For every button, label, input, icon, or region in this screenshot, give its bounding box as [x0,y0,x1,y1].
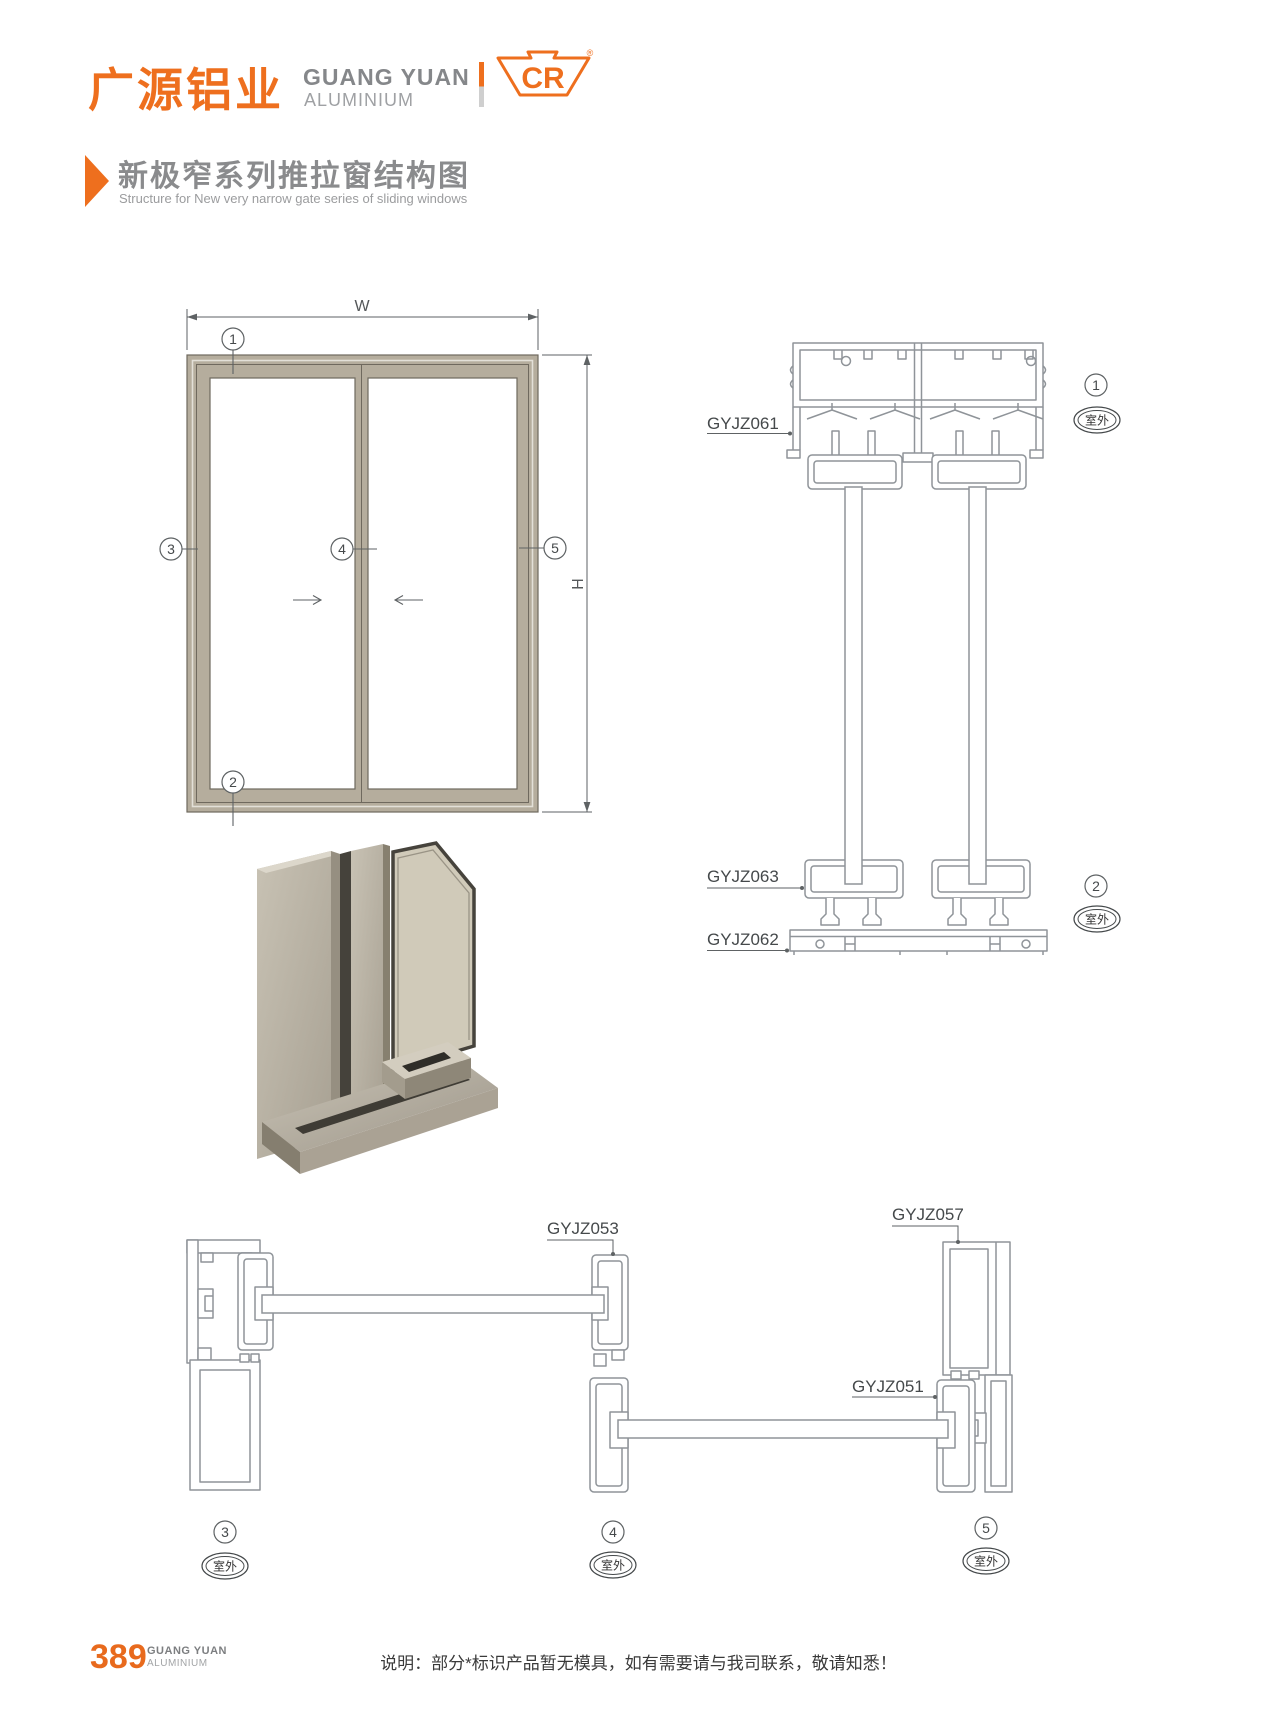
title-arrow-icon [85,155,111,209]
callout-4: 4 [338,541,346,557]
sill-profile-drawing [790,930,1047,955]
footer-note: 说明：部分*标识产品暂无模具，如有需要请与我司联系，敬请知悉！ [0,1649,1277,1674]
outdoor-label: 室外 [974,1554,998,1569]
registered-mark: ® [587,48,594,58]
outdoor-label: 室外 [1085,413,1109,428]
callout-1: 1 [1092,377,1100,393]
section-callout-5: 5 室外 [963,1517,1009,1574]
callout-5: 5 [551,540,559,556]
callout-1: 1 [229,331,237,347]
meeting-stile-profiles [590,1255,628,1492]
catalog-page: 广源铝业 GUANG YUAN ALUMINIUM CR ® 新极窄系列推拉窗结… [0,0,1277,1721]
logo-english-line1: GUANG YUAN [303,64,470,91]
section-callout-4: 4 室外 [590,1521,636,1578]
left-glass-pane [210,378,355,789]
section-callout-3: 3 室外 [202,1521,248,1579]
render-glass [393,843,474,1070]
outdoor-label: 室外 [1085,912,1109,927]
window-elevation-drawing: W H 1 2 3 4 5 [140,290,610,850]
section-callout-1: 1 室外 [1074,374,1120,433]
callout-3: 3 [221,1524,229,1540]
width-dimension-label: W [354,298,370,315]
meeting-stile-label: GYJZ053 [547,1219,619,1238]
elevation-frame [187,355,538,812]
sill-profile-label: GYJZ062 [707,930,779,949]
sash-bottom-profiles [805,860,1030,925]
section-callout-2: 2 室外 [1074,875,1120,932]
outdoor-label: 室外 [601,1558,625,1573]
render-groove [340,851,351,1134]
page-title: 新极窄系列推拉窗结构图 [118,151,470,195]
sash-bottom-profile-label: GYJZ063 [707,867,779,886]
callout-5: 5 [982,1520,990,1536]
horizontal-section-drawing: GYJZ053 GYJZ057 GYJZ051 3 室外 4 室外 5 室外 [140,1195,1080,1590]
logo-chinese: 广源铝业 [88,54,284,120]
outdoor-label: 室外 [213,1559,237,1574]
callout-2: 2 [1092,878,1100,894]
logo-divider [479,62,484,107]
cr-badge-text: CR [521,62,565,95]
section-glass-panes [845,487,986,884]
logo-english-line2: ALUMINIUM [304,90,414,111]
sash-stile-label: GYJZ051 [852,1377,924,1396]
page-subtitle: Structure for New very narrow gate serie… [119,191,467,206]
vertical-section-drawing: GYJZ061 GYJZ063 GYJZ062 1 室外 2 室外 [640,330,1140,970]
callout-3: 3 [167,541,175,557]
head-profile-drawing [787,343,1046,462]
profile-3d-render [240,840,510,1210]
cr-brand-icon: CR ® [495,48,595,110]
callout-4: 4 [609,1524,617,1540]
right-glass-pane [368,378,517,789]
right-jamb-label: GYJZ057 [892,1205,964,1224]
callout-2: 2 [229,774,237,790]
head-profile-label: GYJZ061 [707,414,779,433]
height-dimension-label: H [568,578,585,590]
